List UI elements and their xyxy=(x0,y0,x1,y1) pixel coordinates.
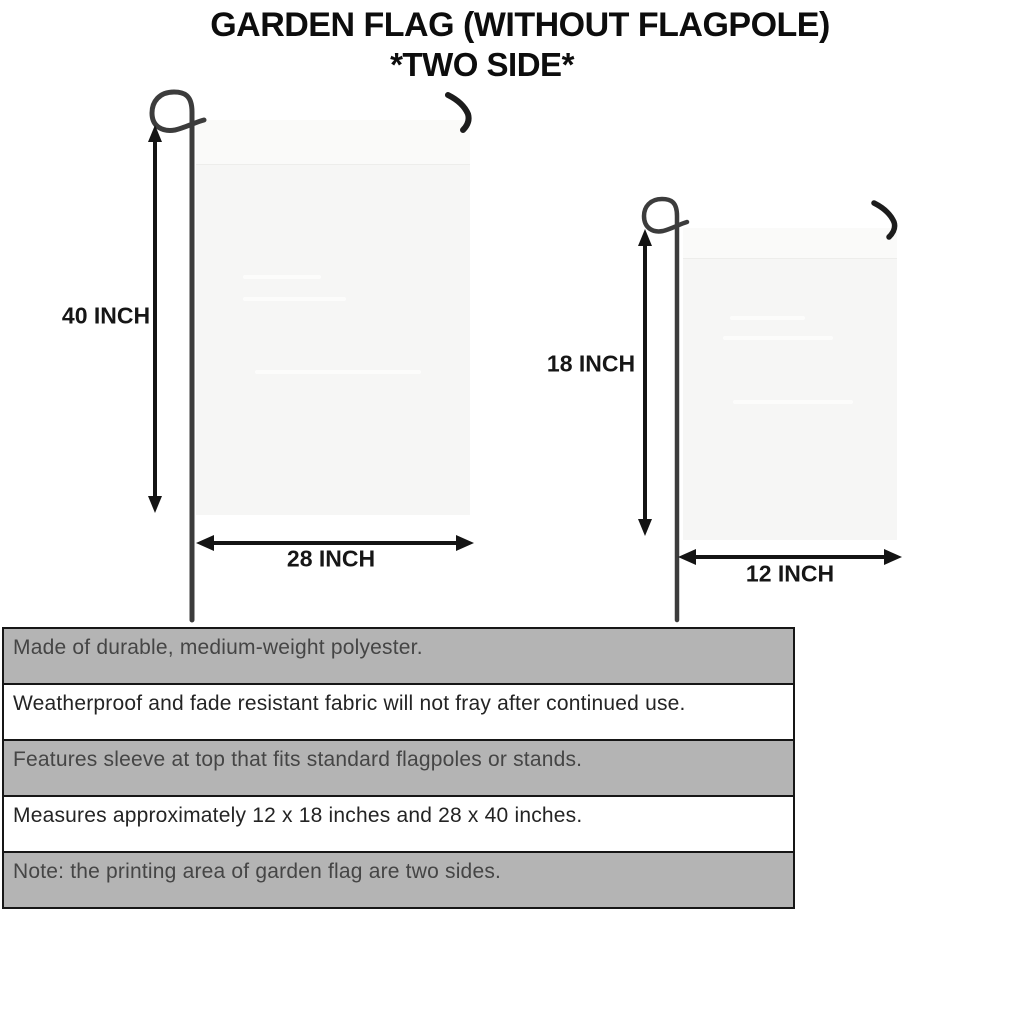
small-height-arrow-icon xyxy=(638,229,652,536)
fabric-streak xyxy=(255,370,421,374)
large-flag-sleeve xyxy=(196,120,470,165)
feature-row: Made of durable, medium-weight polyester… xyxy=(2,627,795,685)
fabric-streak xyxy=(733,400,853,404)
page-subtitle: *TWO SIDE* xyxy=(0,46,994,84)
small-flag-sleeve xyxy=(683,228,897,259)
fabric-streak xyxy=(243,275,321,279)
small-flagpole-icon xyxy=(644,199,687,620)
feature-row: Weatherproof and fade resistant fabric w… xyxy=(2,683,795,741)
features-list: Made of durable, medium-weight polyester… xyxy=(2,627,795,909)
large-width-label: 28 INCH xyxy=(287,546,375,573)
fabric-streak xyxy=(243,297,346,301)
feature-row: Note: the printing area of garden flag a… xyxy=(2,851,795,909)
small-width-label: 12 INCH xyxy=(746,561,834,588)
fabric-streak xyxy=(723,336,833,340)
feature-row: Measures approximately 12 x 18 inches an… xyxy=(2,795,795,853)
small-flag xyxy=(683,228,897,540)
feature-row: Features sleeve at top that fits standar… xyxy=(2,739,795,797)
large-height-label: 40 INCH xyxy=(62,303,150,330)
small-height-label: 18 INCH xyxy=(547,351,635,378)
large-flag xyxy=(196,120,470,515)
garden-flag-infographic: GARDEN FLAG (WITHOUT FLAGPOLE) *TWO SIDE… xyxy=(0,0,1024,1024)
page-title: GARDEN FLAG (WITHOUT FLAGPOLE) xyxy=(8,6,1024,45)
fabric-streak xyxy=(730,316,805,320)
